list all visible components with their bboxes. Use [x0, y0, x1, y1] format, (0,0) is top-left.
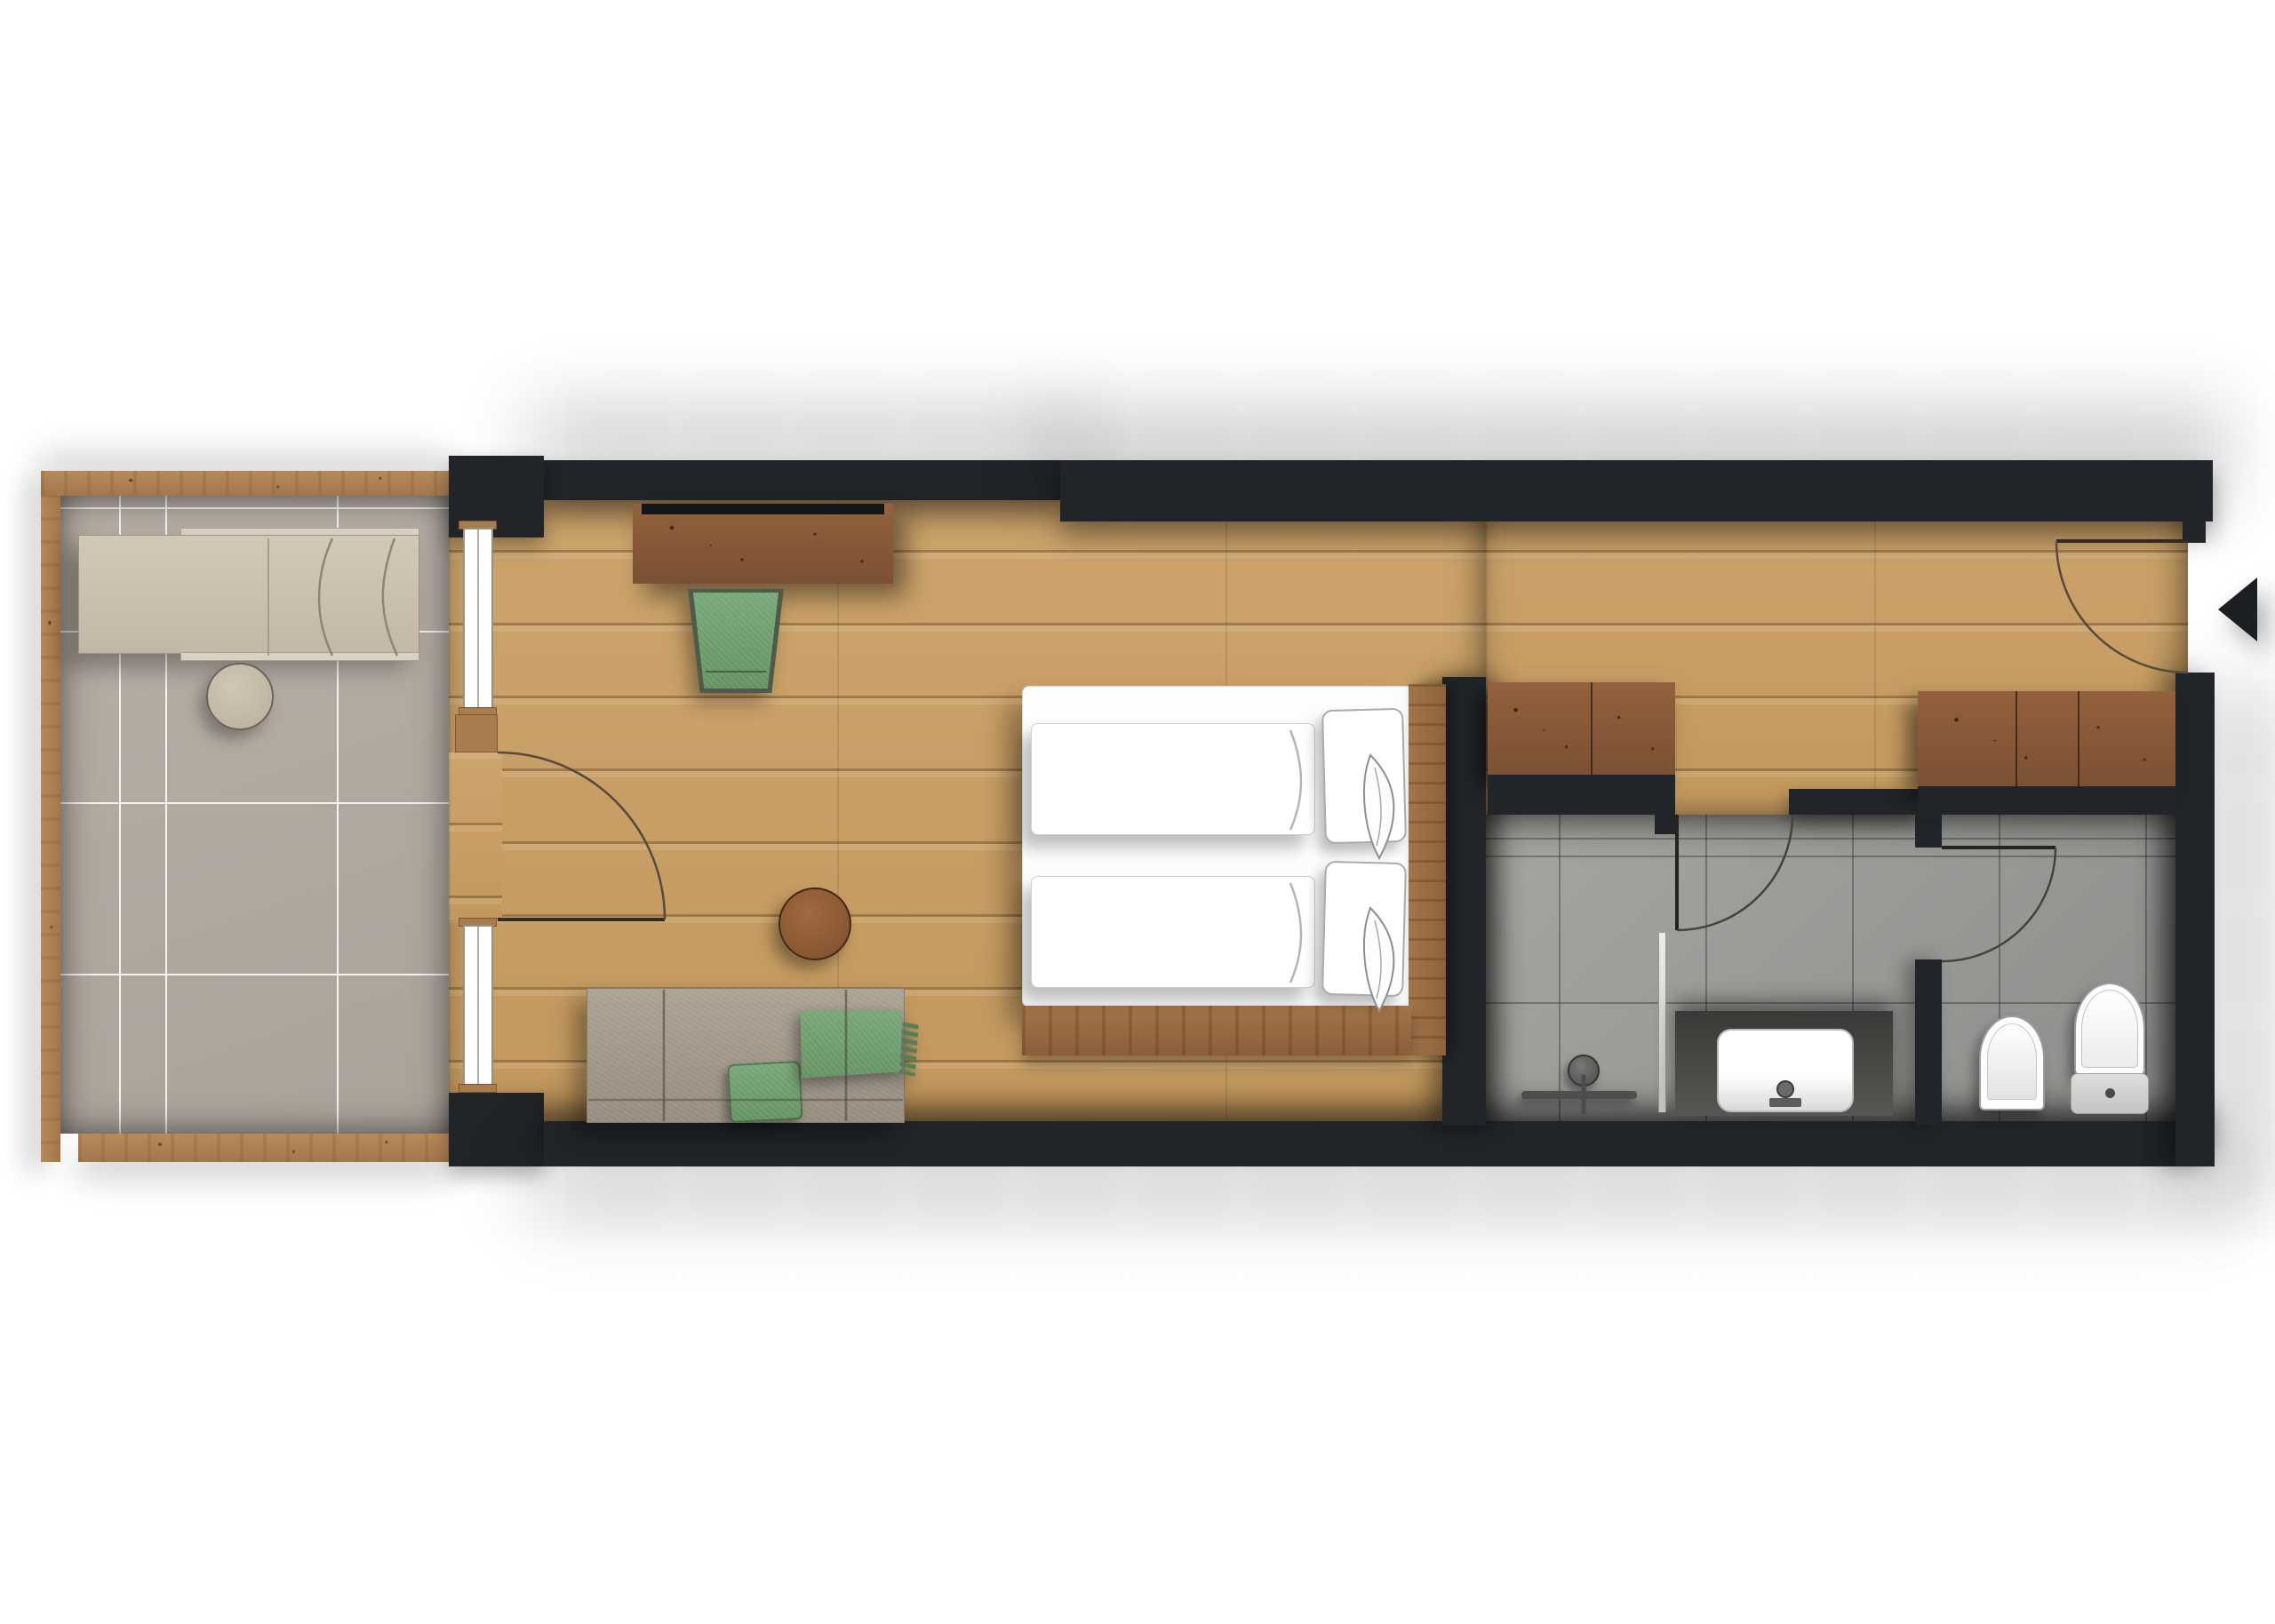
- wardrobe-left-plinth: [1488, 775, 1675, 815]
- throw-body: [795, 1003, 906, 1085]
- sofa-green-throw: [795, 1003, 923, 1086]
- balcony-side-table: [206, 663, 274, 730]
- entrance-arrow-icon: [2218, 577, 2257, 641]
- bed: [1022, 684, 1446, 1055]
- armchair-fabric: [690, 593, 781, 689]
- armchair: [686, 589, 786, 693]
- toilet-bowl-inner: [2081, 990, 2138, 1068]
- basin-faucet-handle: [1769, 1098, 1801, 1107]
- basin-faucet: [1776, 1080, 1794, 1098]
- bidet-bowl: [1987, 1023, 2037, 1100]
- bath-door-jamb: [1655, 815, 1677, 834]
- round-side-table: [778, 888, 851, 960]
- lounger-rail-bottom: [180, 652, 419, 661]
- wall-top-left-band: [544, 460, 1060, 500]
- balcony-frame-bottom: [78, 1134, 450, 1162]
- throw-fringe: [899, 1022, 919, 1077]
- wall-wc-lower: [1915, 959, 1942, 1126]
- bidet: [1979, 1015, 2045, 1111]
- wall-right: [2175, 673, 2215, 1166]
- toilet-flush-button: [2105, 1088, 2115, 1098]
- wall-top-right-band: [1060, 460, 2213, 521]
- shower: [1521, 1053, 1642, 1115]
- wardrobe-right-divider-2: [2078, 691, 2079, 786]
- wardrobe-left: [1488, 682, 1675, 775]
- wardrobe-right-divider-1: [2016, 691, 2017, 786]
- wardrobe-right: [1918, 691, 2175, 786]
- lounger-cushion: [78, 535, 419, 654]
- bed-headboard: [1409, 684, 1446, 1055]
- wall-bath-top: [1789, 789, 1918, 815]
- wall-corner-bottom-left: [449, 1093, 544, 1166]
- wall-wc-stub-top: [1915, 815, 1942, 848]
- wardrobe-right-plinth: [1918, 786, 2175, 815]
- pillow-1: [1321, 708, 1407, 844]
- sun-lounger: [78, 528, 419, 661]
- armchair-seat-line: [706, 671, 766, 673]
- desk-recess: [642, 504, 884, 514]
- duvet-1: [1031, 723, 1315, 835]
- wall-bottom: [544, 1121, 2215, 1166]
- balcony-frame-left: [41, 471, 60, 1162]
- wardrobe-left-divider: [1591, 682, 1592, 775]
- shower-glass-screen: [1658, 933, 1666, 1112]
- bed-foot-rail: [1022, 1006, 1411, 1055]
- duvet-2: [1031, 876, 1315, 988]
- balcony-frame-top: [41, 471, 450, 496]
- sofa-green-pillow: [727, 1061, 802, 1123]
- entrance-jamb-top: [2183, 520, 2206, 543]
- window-upper: [463, 528, 493, 709]
- wall-bed-bath-divider: [1442, 677, 1486, 1126]
- window-lower-cap-bottom: [459, 1084, 497, 1093]
- toilet: [2071, 983, 2149, 1112]
- floor-plan: [0, 0, 2275, 1624]
- window-lower: [463, 925, 493, 1086]
- balcony-door-threshold: [449, 752, 502, 919]
- shower-mixer-bar: [1521, 1091, 1637, 1099]
- shower-head: [1568, 1055, 1600, 1087]
- vanity-counter: [1675, 1011, 1893, 1116]
- pillow-2: [1321, 861, 1407, 997]
- desk-sideboard: [633, 504, 893, 584]
- balcony-door-jamb: [455, 714, 498, 752]
- entrance-jamb-bottom: [2175, 673, 2206, 699]
